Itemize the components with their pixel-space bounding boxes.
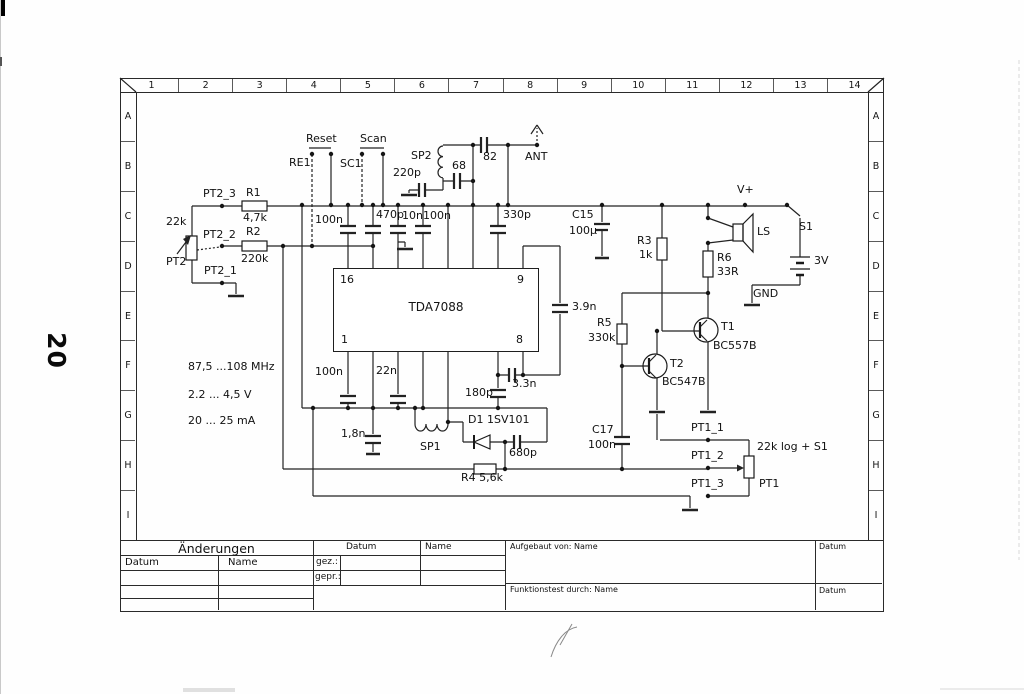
label-t1: T1 <box>721 321 735 333</box>
label-cap-3p3n: 3.3n <box>512 378 536 390</box>
title-aufgebaut: Aufgebaut von: Name <box>510 542 598 551</box>
label-t1-type: BC557B <box>713 340 757 352</box>
label-r5-value: 330k <box>588 332 615 344</box>
label-c17-value: 100n <box>588 439 616 451</box>
label-cap-100n-1: 100n <box>315 214 343 226</box>
label-cap-100n-3: 100n <box>315 366 343 378</box>
label-cap-3p9n: 3.9n <box>572 301 596 313</box>
title-name: Name <box>228 557 258 568</box>
potentiometer-pt1 <box>744 456 754 478</box>
label-cap-330p: 330p <box>503 209 531 221</box>
label-pt1-3: PT1_3 <box>691 478 724 490</box>
label-c15-value: 100µ <box>569 225 597 237</box>
diode-d1 <box>474 435 490 449</box>
title-block: Änderungen Datum Name gez.: gepr.: Datum… <box>120 540 882 610</box>
label-r6-value: 33R <box>717 266 739 278</box>
speaker-ls <box>733 214 753 252</box>
label-r6: R6 <box>717 252 732 264</box>
label-cap-470p: 470p <box>376 209 404 221</box>
resistor-r3 <box>657 238 667 260</box>
label-cap-1p8n: 1,8n <box>341 428 365 440</box>
label-pt1-value: 22k log + S1 <box>757 441 828 453</box>
label-sp1: SP1 <box>420 441 441 453</box>
label-cap-10n: 10n <box>402 210 423 222</box>
spec-voltage-range: 2.2 ... 4,5 V <box>188 388 252 401</box>
title-aenderungen: Änderungen <box>120 541 313 556</box>
scan-pen-marks <box>551 624 577 657</box>
resistor-r2 <box>242 241 267 251</box>
label-r2: R2 <box>246 226 261 238</box>
label-d1: D1 1SV101 <box>468 414 529 426</box>
label-re1: RE1 <box>289 157 311 169</box>
label-c15: C15 <box>572 209 594 221</box>
spec-frequency-range: 87,5 ...108 MHz <box>188 360 275 373</box>
title-datum: Datum <box>125 557 159 568</box>
label-r3-value: 1k <box>639 249 652 261</box>
label-c17: C17 <box>592 424 614 436</box>
ic-pin-1: 1 <box>341 333 348 346</box>
scanned-schematic-page: 20 1234567891011121314 ABCDEFGHI ABCDEFG… <box>0 0 1024 694</box>
label-r1-value: 4,7k <box>243 212 267 224</box>
title-funktionstest-datum: Datum <box>819 586 846 595</box>
label-cap-82: 82 <box>483 151 497 163</box>
label-ls: LS <box>757 226 770 238</box>
label-r5: R5 <box>597 317 612 329</box>
scan-edge-artifacts <box>940 60 1024 689</box>
battery-3v <box>790 257 810 275</box>
label-pt2-3: PT2_3 <box>203 188 236 200</box>
label-reset: Reset <box>306 133 337 145</box>
label-pt2-2: PT2_2 <box>203 229 236 241</box>
label-cap-68: 68 <box>452 160 466 172</box>
label-t2-type: BC547B <box>662 376 706 388</box>
label-r2-value: 220k <box>241 253 268 265</box>
label-t2: T2 <box>670 358 684 370</box>
label-cap-180p: 180p <box>465 387 493 399</box>
resistor-r1 <box>242 201 267 211</box>
label-sp2: SP2 <box>411 150 432 162</box>
label-pt1-1: PT1_1 <box>691 422 724 434</box>
title-gez: gez.: <box>316 557 338 567</box>
ic-pin-16: 16 <box>340 273 354 286</box>
resistor-r5 <box>617 324 627 344</box>
label-vplus: V+ <box>737 184 754 196</box>
label-r4: R4 5,6k <box>461 472 503 484</box>
label-s1: S1 <box>799 221 813 233</box>
title-datum2: Datum <box>346 542 376 552</box>
title-aufgebaut-datum: Datum <box>819 542 846 551</box>
label-cap-22n: 22n <box>376 365 397 377</box>
label-pt1-2: PT1_2 <box>691 450 724 462</box>
spec-current-range: 20 ... 25 mA <box>188 414 255 427</box>
label-cap-100n-2: 100n <box>423 210 451 222</box>
label-battery-3v: 3V <box>814 255 829 267</box>
ic-tda7088: 16 9 1 8 TDA7088 <box>333 268 539 352</box>
label-pt1: PT1 <box>759 478 779 490</box>
label-pt2-22k: 22k <box>166 216 186 228</box>
title-name2: Name <box>425 542 452 552</box>
label-ant: ANT <box>525 151 547 163</box>
label-pt2-1: PT2_1 <box>204 265 237 277</box>
ic-name: TDA7088 <box>334 300 538 314</box>
label-cap-220p: 220p <box>393 167 421 179</box>
label-pt2: PT2 <box>166 256 186 268</box>
label-cap-680p: 680p <box>509 447 537 459</box>
resistor-r6 <box>703 251 713 277</box>
ground-symbols <box>228 195 760 510</box>
label-r1: R1 <box>246 187 261 199</box>
label-scan: Scan <box>360 133 387 145</box>
ic-pin-8: 8 <box>516 333 523 346</box>
label-gnd: GND <box>753 288 778 300</box>
title-funktionstest: Funktionstest durch: Name <box>510 585 618 594</box>
label-r3: R3 <box>637 235 652 247</box>
title-gepr: gepr.: <box>315 572 341 582</box>
label-sc1: SC1 <box>340 158 362 170</box>
ic-pin-9: 9 <box>517 273 524 286</box>
